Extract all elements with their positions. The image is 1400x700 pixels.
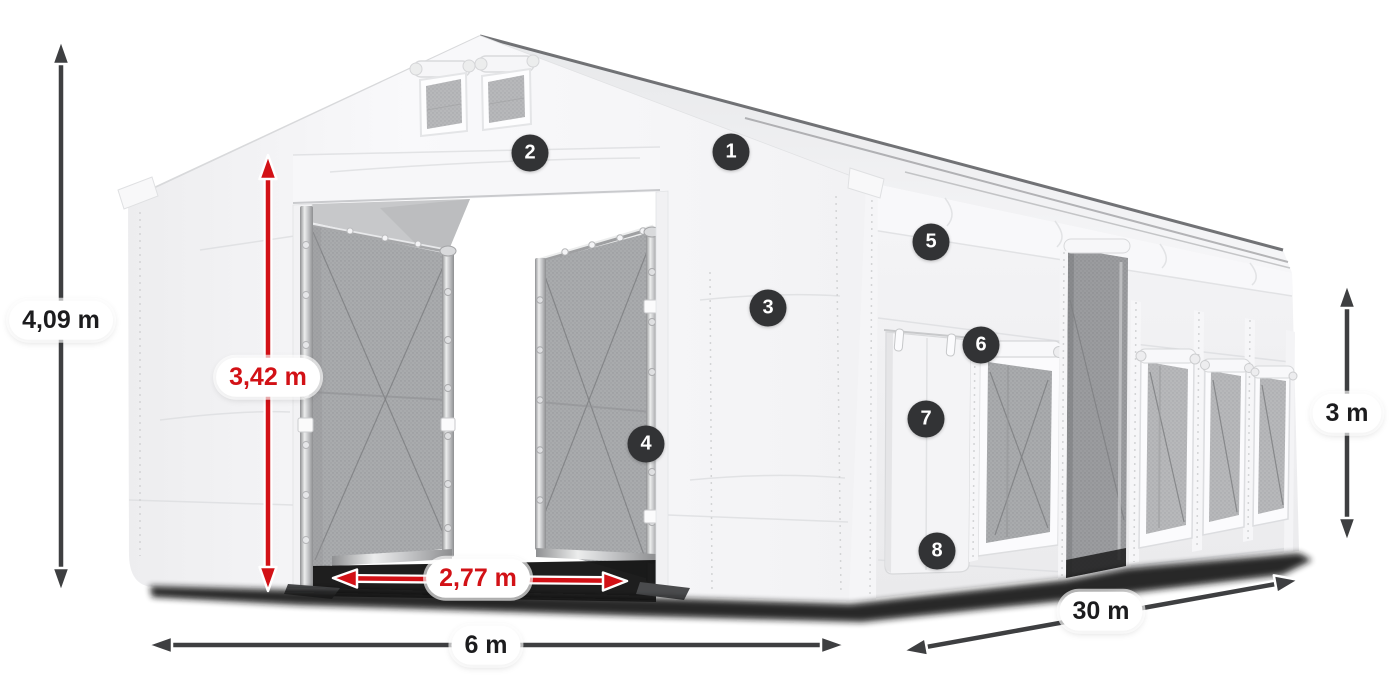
callout-8: 8 — [919, 533, 956, 570]
entrance-left-leaf — [311, 226, 456, 568]
tent-illustration — [0, 0, 1400, 700]
length-label: 30 m — [1060, 592, 1143, 631]
flap-hook-left — [894, 329, 904, 352]
callout-5: 5 — [913, 224, 950, 261]
callout-6: 6 — [963, 327, 1000, 364]
side-mesh-window-1 — [974, 341, 1065, 556]
callout-1: 1 — [713, 134, 750, 171]
product-dimension-diagram: 4,09 m 3,42 m 2,77 m 6 m 30 m 3 m 1 2 3 … — [0, 0, 1400, 700]
callout-4: 4 — [628, 426, 665, 463]
side-mesh-window-2 — [1136, 349, 1200, 548]
entrance-opening — [310, 192, 660, 602]
gable-vent-right — [475, 55, 539, 130]
side-opening-roll — [1064, 239, 1130, 253]
callout-3: 3 — [750, 290, 787, 327]
side-opening — [1064, 239, 1130, 578]
window-roll-2 — [1138, 349, 1196, 363]
width-label: 6 m — [451, 626, 520, 665]
door-width-label: 2,77 m — [426, 559, 530, 598]
entrance-right-leaf — [535, 227, 660, 582]
flap-hook-right — [946, 334, 956, 357]
callout-2: 2 — [512, 135, 549, 172]
total-height-label: 4,09 m — [9, 301, 113, 340]
door-height-label: 3,42 m — [216, 358, 320, 397]
side-height-label: 3 m — [1312, 394, 1381, 433]
callout-7: 7 — [908, 401, 945, 438]
